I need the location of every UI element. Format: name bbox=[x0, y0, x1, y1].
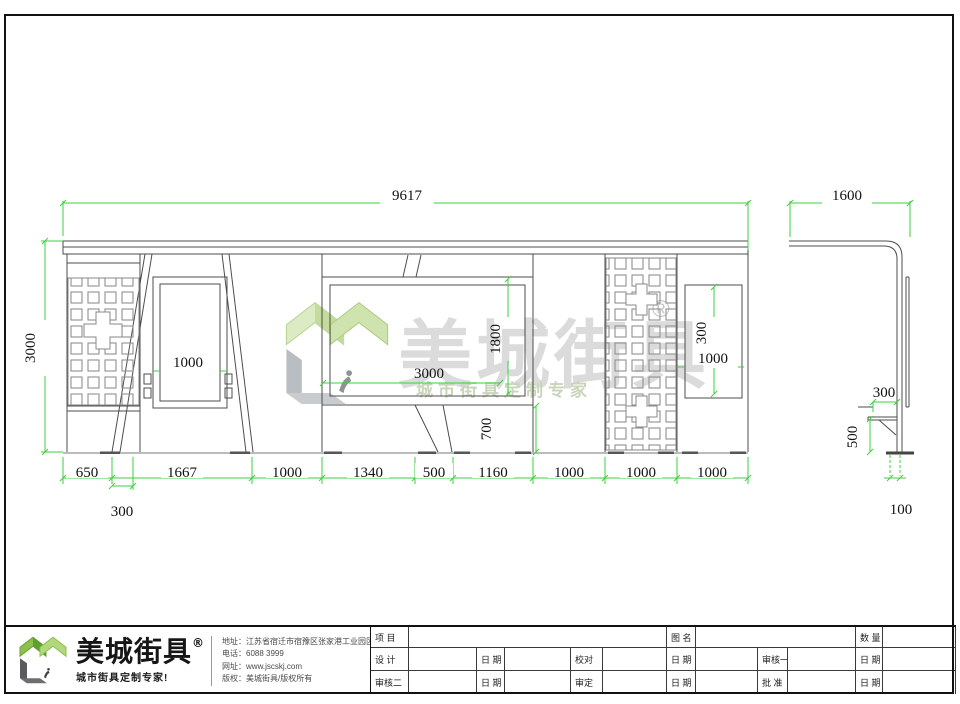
drawing-sheet: 美城街具 ® 城市街具定制专家 ！ bbox=[0, 0, 960, 704]
titleblock-field-review2 bbox=[409, 671, 477, 694]
titleblock-field-date-1 bbox=[505, 648, 571, 671]
titleblock-label-date-6: 日 期 bbox=[856, 671, 883, 694]
titleblock-field-date-5 bbox=[696, 671, 758, 694]
dim-bottom-5: 500 bbox=[423, 465, 446, 481]
dim-bottom-7: 1000 bbox=[554, 465, 584, 481]
dim-bottom-4: 1340 bbox=[353, 465, 383, 481]
cad-drawing-svg: 9617 1600 3000 1000 3000 1800 700 300 10… bbox=[0, 0, 960, 704]
dim-ad-height: 1800 bbox=[488, 324, 504, 354]
dim-bottom-9: 1000 bbox=[697, 465, 727, 481]
dim-support-height: 700 bbox=[479, 418, 495, 441]
titleblock-field-design bbox=[409, 648, 477, 671]
dimension-labels: 9617 1600 3000 1000 3000 1800 700 300 10… bbox=[23, 188, 912, 520]
dim-overall-width: 9617 bbox=[392, 188, 423, 204]
titleblock-label-date-2: 日 期 bbox=[667, 648, 696, 671]
dim-bottom-3: 1000 bbox=[272, 465, 302, 481]
dimension-lines bbox=[41, 200, 913, 490]
contact-website-value: www.jscskj.com bbox=[246, 662, 302, 671]
company-brand-name: 美城街具® bbox=[76, 637, 205, 666]
contact-copyright-value: 美城街具/版权所有 bbox=[246, 674, 312, 683]
titleblock-label-quantity: 数 量 bbox=[856, 627, 883, 648]
company-logo-icon bbox=[18, 634, 68, 688]
titleblock-label-ratify: 批 准 bbox=[758, 671, 788, 694]
dim-right-box-height: 300 bbox=[694, 322, 710, 345]
titleblock-field-review1 bbox=[788, 648, 856, 671]
titleblock-label-project: 项 目 bbox=[371, 627, 409, 648]
titleblock-label-design: 设 计 bbox=[371, 648, 409, 671]
dim-bottom-2: 1667 bbox=[167, 465, 198, 481]
titleblock-field-date-2 bbox=[696, 648, 758, 671]
company-tagline: 城市街具定制专家! bbox=[76, 669, 205, 684]
titleblock-label-approve: 审定 bbox=[571, 671, 603, 694]
titleblock-label-review1: 审核一 bbox=[758, 648, 788, 671]
titleblock-label-date-1: 日 期 bbox=[477, 648, 505, 671]
footer-logo-block: 美城街具® 城市街具定制专家! 地址：江苏省宿迁市宿豫区张家港工业园区保丰路西侧… bbox=[4, 625, 370, 694]
dim-seat-depth: 300 bbox=[873, 385, 896, 401]
dim-post-width: 100 bbox=[890, 502, 913, 518]
contact-phone-value: 6088 3999 bbox=[246, 649, 284, 658]
titleblock-label-drawing-name: 图 名 bbox=[667, 627, 696, 648]
titleblock-field-date-6 bbox=[883, 671, 956, 694]
titleblock-label-date-5: 日 期 bbox=[667, 671, 696, 694]
contact-address-label: 地址： bbox=[222, 637, 246, 646]
dim-side-width: 1600 bbox=[832, 188, 862, 204]
titleblock-field-date-3 bbox=[883, 648, 956, 671]
dim-bottom-8: 1000 bbox=[626, 465, 656, 481]
contact-website-label: 网址： bbox=[222, 662, 246, 671]
dim-bottom-6: 1160 bbox=[478, 465, 507, 481]
dim-left-offset: 300 bbox=[111, 504, 134, 520]
titleblock-label-date-4: 日 期 bbox=[477, 671, 505, 694]
titleblock-label-review2: 审核二 bbox=[371, 671, 409, 694]
titleblock-field-date-4 bbox=[505, 671, 571, 694]
dim-seat-height: 500 bbox=[845, 426, 861, 449]
titleblock-label-date-3: 日 期 bbox=[856, 648, 883, 671]
registered-mark: ® bbox=[192, 636, 205, 650]
titleblock-field-quantity bbox=[883, 627, 956, 648]
titleblock-field-drawing-name bbox=[696, 627, 856, 648]
lattice-panels bbox=[68, 258, 676, 450]
dim-ad-width: 3000 bbox=[414, 366, 444, 382]
dim-lightbox-width: 1000 bbox=[173, 355, 203, 371]
footer-divider bbox=[211, 636, 212, 686]
side-view bbox=[789, 241, 914, 453]
contact-phone-label: 电话： bbox=[222, 649, 246, 658]
titleblock-label-proofread: 校对 bbox=[571, 648, 603, 671]
company-brand-text: 美城街具 bbox=[76, 635, 192, 668]
dim-right-box-width: 1000 bbox=[698, 351, 728, 367]
titleblock-field-approve bbox=[603, 671, 667, 694]
titleblock-field-ratify bbox=[788, 671, 856, 694]
titleblock-field-proofread bbox=[603, 648, 667, 671]
titleblock: 项 目 图 名 数 量 设 计 日 期 校对 日 期 审核一 日 期 审核二 日… bbox=[370, 625, 956, 694]
dim-bottom-1: 650 bbox=[76, 465, 99, 481]
titleblock-field-project bbox=[409, 627, 667, 648]
contact-copyright-label: 版权： bbox=[222, 674, 246, 683]
dim-overall-height: 3000 bbox=[23, 333, 39, 363]
